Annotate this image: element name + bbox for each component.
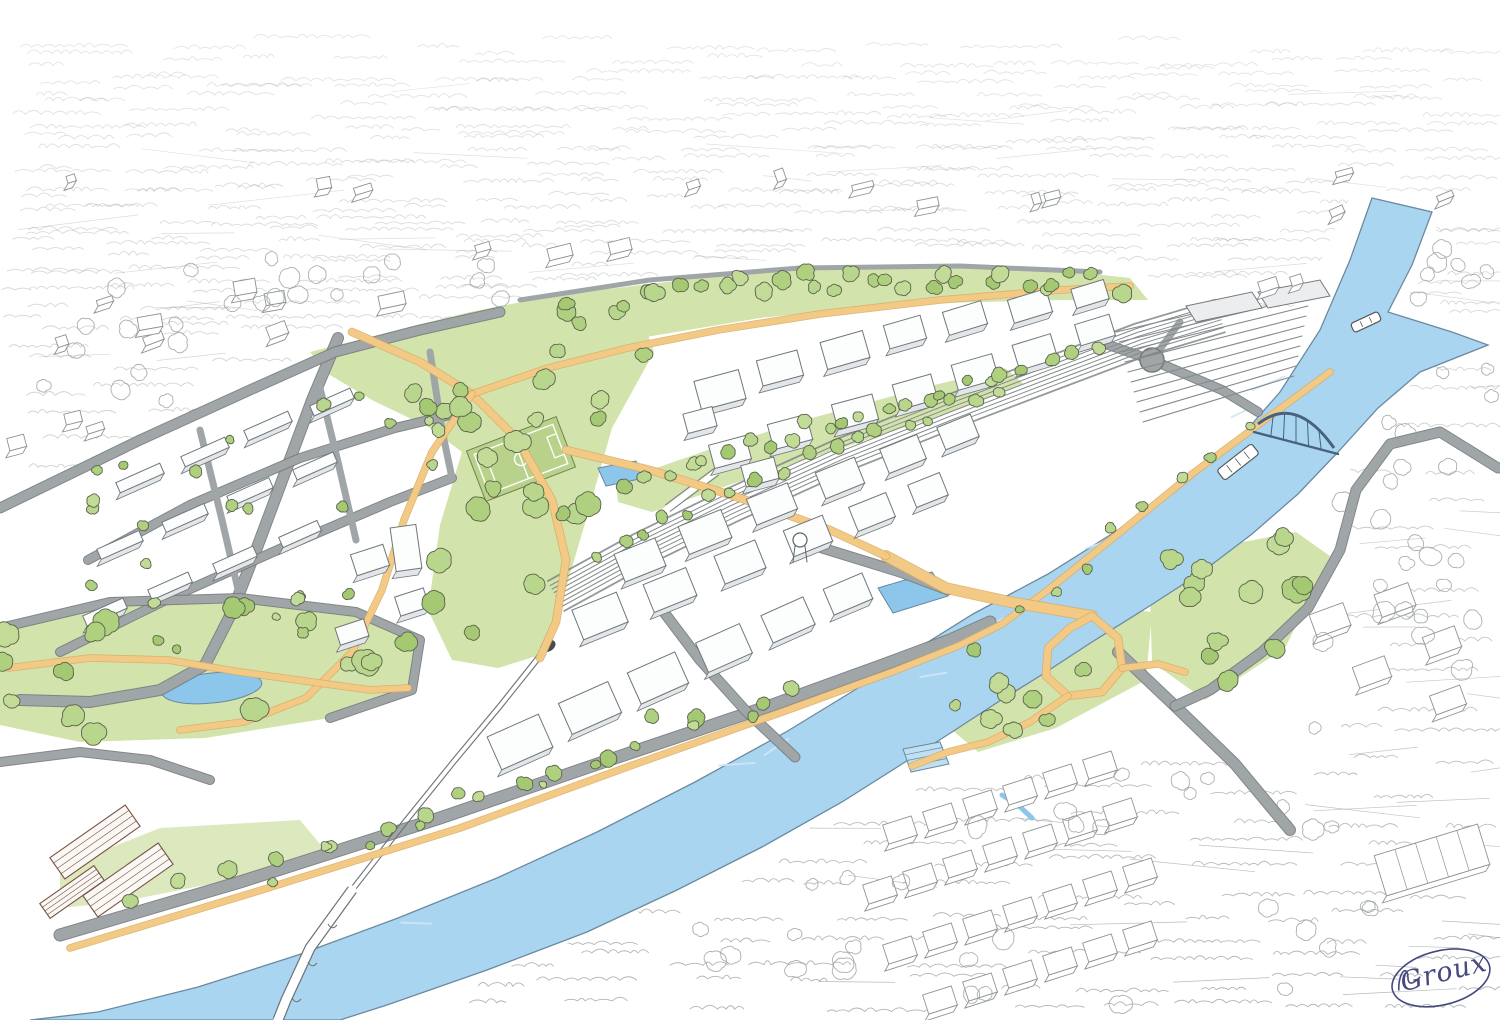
masterplan-illustration: Groux: [0, 0, 1500, 1020]
artist-signature: Groux: [1386, 940, 1496, 1017]
aerial-sketch-canvas: Groux: [0, 0, 1500, 1020]
